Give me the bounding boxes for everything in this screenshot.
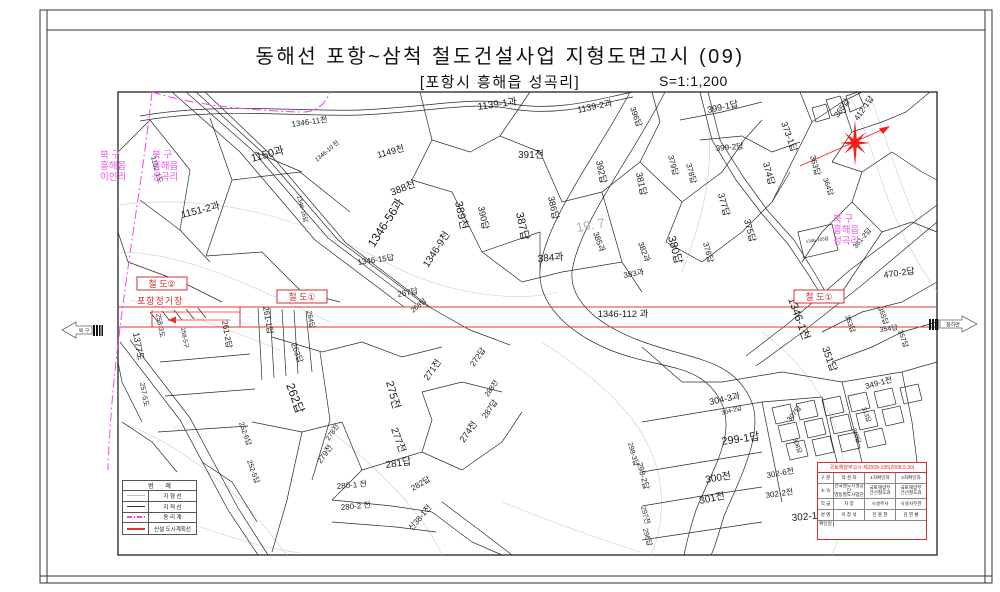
parcel-label: 355답 — [876, 306, 891, 327]
parcel-label: 389천 — [452, 200, 472, 231]
cell: 국토해양부 간선철도과 — [896, 484, 926, 499]
parcel-label: 257-5도 — [138, 382, 150, 408]
parcel-label: 301전 — [698, 490, 726, 507]
parcel-label: 272답 — [467, 345, 487, 368]
parcel-label: 1139-1과 — [477, 96, 518, 113]
signature-cell — [834, 521, 926, 527]
parcel-label: 383과 — [623, 267, 646, 280]
parcel-label: 252-6답 — [237, 421, 254, 447]
parcel-label: 288전 — [482, 378, 500, 398]
parcel-label: 308답 — [791, 437, 803, 454]
parcel-label: 375답 — [742, 218, 759, 243]
parcel-label: 261-2답 — [220, 320, 235, 350]
legend-label: 신설 도시계획선 — [149, 523, 196, 534]
parcel-label: 1346-105답 — [805, 235, 829, 244]
cell: 직 급 — [818, 499, 834, 510]
parcel-label: 385과 — [591, 231, 607, 254]
cell: 확인일 — [818, 521, 834, 527]
legend-sample-boundary — [123, 513, 149, 524]
parcel-label: 1346-9천 — [420, 229, 452, 269]
parcel-label: 1346-10 천 — [313, 139, 341, 164]
parcel-label: 277전 — [388, 426, 408, 454]
parcel-label: 351답 — [819, 345, 839, 373]
barcode-right — [929, 319, 939, 330]
parcel-label: 353답 — [843, 314, 858, 335]
cell: 김 영 룡 — [896, 510, 926, 521]
parcel-label: 신38-1천 — [406, 502, 433, 532]
cell: 작 성 자 — [834, 473, 865, 484]
parcel-label: 363답 — [808, 154, 823, 177]
left-connection-arrow: 북 구 — [62, 322, 103, 338]
cadastral-line-swatch — [127, 506, 145, 507]
admin-district-label: 북 구흥해읍성곡리 — [833, 214, 859, 247]
parcel-label: 296답 — [641, 527, 655, 547]
parcel-label: 387답 — [513, 211, 532, 242]
approval-header: 국토해양부고시 제2008-195(2008.5.30) — [818, 463, 926, 473]
parcel-label: 258-3도 — [154, 313, 166, 339]
parcel-label: 267답 — [397, 285, 420, 299]
parcel-label: 271전 — [421, 357, 443, 382]
parcel-label: 1151-2과 — [180, 200, 221, 221]
left-arrow-label: 북 구 — [79, 329, 90, 335]
parcel-label: 262답 — [283, 381, 307, 415]
parcel-label: 390답 — [476, 205, 492, 230]
topo-line-swatch — [127, 495, 145, 496]
legend-sample-cadastral — [123, 502, 149, 513]
railway-lines — [118, 307, 937, 327]
cell: 이 창 석 — [834, 510, 865, 521]
railway-box-label: 철 도② — [148, 279, 175, 289]
drawing-sheet: 1150과1151-2과1152-1도1346-11천1149천388천1346… — [0, 0, 1000, 592]
parcel-label: 378답 — [684, 162, 699, 185]
parcel-label: 399-2답 — [715, 141, 744, 153]
parcel-label: 399-1답 — [706, 98, 739, 115]
legend-sample-newplan — [123, 523, 149, 534]
parcel-label: 1150과 — [249, 144, 285, 165]
legend-label: 지 형 선 — [149, 491, 196, 502]
parcel-label: 278전 — [323, 422, 341, 442]
parcel-label: 299-1답 — [721, 430, 761, 448]
parcel-label: 304-3과 — [708, 391, 741, 407]
admin-district-label: 북 구흥해읍성곡리 — [152, 150, 178, 183]
parcel-label: 374답 — [761, 161, 778, 186]
parcel-label: 412-1답 — [851, 93, 876, 122]
parcel-label: 392답 — [594, 159, 610, 184]
cell: 성 명 — [818, 510, 834, 521]
boundary-line-swatch — [127, 516, 145, 518]
parcel-label: 279전 — [314, 442, 334, 465]
cell: 시설사무관 — [896, 499, 926, 510]
parcel-label: 313답 — [860, 406, 872, 423]
parcel-label: 287답 — [479, 397, 499, 420]
cell: 민 홍 현 — [865, 510, 896, 521]
admin-district-label: 북 구흥해읍이인리 — [100, 150, 126, 183]
parcel-label: 470-2답 — [883, 265, 916, 280]
legend-sample-topo — [123, 491, 149, 502]
approval-table: 구 분 작 성 자 1차확인자 2차확인자 소 속 한국철도시설공단 영동철도사… — [818, 473, 926, 527]
parcel-label: 302-2전 — [765, 486, 794, 500]
cell: 한국철도시설공단 영동철도사업단 — [834, 484, 865, 499]
parcel-label: 377답 — [716, 192, 733, 217]
legend-box: 범 례 지 형 선 지 적 선 동 리 계 신설 도시계획선 — [122, 480, 197, 535]
railway-box-label: 철 도① — [288, 292, 315, 302]
parcel-label: 298-3답 — [626, 441, 641, 467]
parcel-label: 1346-56과 — [365, 196, 407, 250]
page-subtitle: [포항시 흥해읍 성곡리] — [0, 71, 1000, 92]
right-arrow-label: 청하면 — [946, 322, 960, 329]
newplan-line-swatch — [127, 528, 145, 530]
cell: 구 분 — [818, 473, 834, 484]
page-title: 동해선 포항~삼척 철도건설사업 지형도면고시 (09) — [0, 40, 1000, 69]
cell: 차 장 — [834, 499, 865, 510]
legend-header: 범 례 — [123, 481, 196, 491]
parcel-label: 388천 — [389, 178, 418, 199]
parcel-label: 384과 — [537, 251, 564, 265]
parcel-label: 19. 7 — [575, 215, 606, 235]
parcel-label: 261-1답 — [261, 306, 276, 336]
parcel-label: 297전 — [639, 505, 652, 525]
parcel-labels: 1150과1151-2과1152-1도1346-11천1149천388천1346… — [131, 93, 915, 547]
right-connection-arrow: 청하면 — [929, 316, 977, 332]
parcel-label: 381답 — [634, 171, 650, 196]
railway-label-boxes: 철 도②철 도①철 도① — [137, 277, 844, 303]
parcel-label: 396답 — [628, 105, 645, 128]
legend-label: 지 적 선 — [149, 502, 196, 513]
parcel-label: 380답 — [665, 234, 685, 265]
parcel-label: 258-5구 — [179, 327, 190, 349]
map-scale: S=1:1,200 — [659, 73, 728, 89]
railway-parcel-label: 1346-112 과 — [598, 309, 649, 320]
parcel-label: 382과 — [636, 241, 652, 264]
parcel-label: 386답 — [546, 195, 562, 220]
parcel-label: 263답 — [289, 341, 306, 364]
parcel-label: 281답 — [385, 455, 412, 470]
parcel-label: 379답 — [666, 154, 681, 177]
parcel-label: 1346-11천 — [291, 114, 328, 129]
cell: 1차확인자 — [865, 473, 896, 484]
cell: 2차확인자 — [896, 473, 926, 484]
approval-block: 국토해양부고시 제2008-195(2008.5.30) 구 분 작 성 자 1… — [817, 462, 927, 540]
parcel-label: 282답 — [409, 473, 432, 492]
parcel-label: 364답 — [821, 177, 836, 198]
legend-label: 동 리 계 — [149, 513, 196, 524]
parcel-label: 275전 — [383, 379, 403, 410]
cell: 국토해양부 간선철도과 — [865, 484, 896, 499]
parcel-label: 274전 — [457, 419, 479, 444]
parcel-label: 1149천 — [376, 143, 405, 160]
parcel-label: 1377도 — [131, 332, 146, 362]
parcel-label: 252-5답 — [245, 459, 262, 485]
barcode-left — [93, 325, 103, 336]
parcel-label: 1139-2과 — [576, 98, 613, 115]
parcel-label: 357답 — [896, 329, 911, 350]
cell: 시설주사 — [865, 499, 896, 510]
parcel-label: 300전 — [704, 470, 732, 486]
railway-box-label: 철 도① — [805, 292, 832, 302]
parcel-label: 280-1 전 — [336, 478, 367, 491]
station-label: 포항정거장 — [137, 296, 183, 306]
cell: 소 속 — [818, 484, 834, 499]
parcel-label: 304-2답 — [721, 405, 743, 417]
parcel-label: 302-6전 — [766, 465, 795, 480]
parcel-label: 391전 — [518, 149, 544, 161]
